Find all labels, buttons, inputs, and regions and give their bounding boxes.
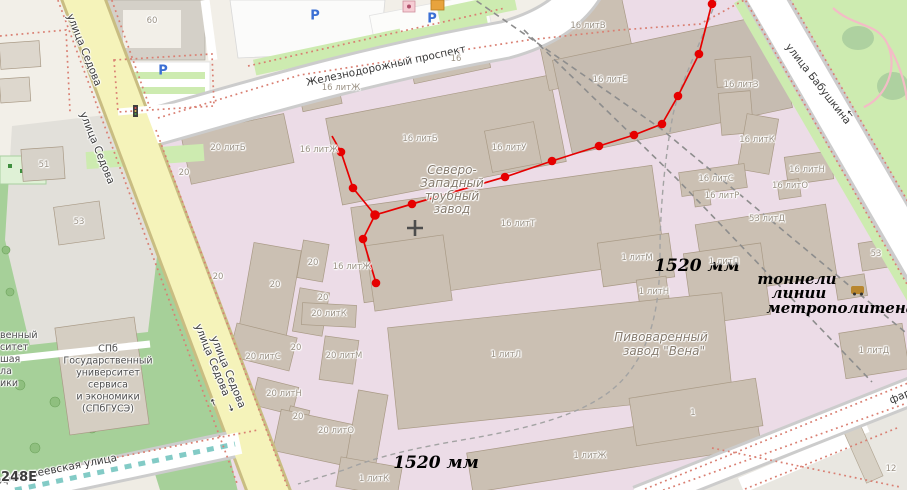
map-base-graphics: [0, 0, 907, 490]
fuel-icon: [431, 0, 444, 10]
map-canvas[interactable]: улица Седова улица Седова улица Седова у…: [0, 0, 907, 490]
